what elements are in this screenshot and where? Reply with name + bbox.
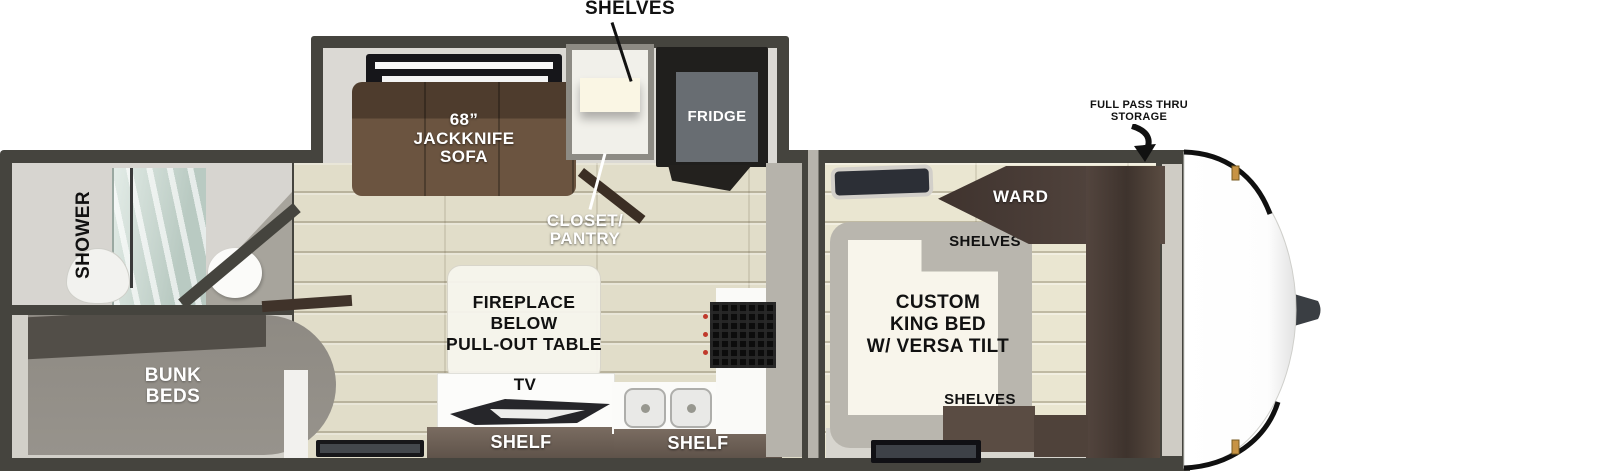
bedroom-corner-cabinet [1034, 415, 1088, 457]
corridor-wall [284, 370, 308, 458]
kitchen-bedroom-divider-wall [801, 150, 825, 458]
fireplace-table-label: FIREPLACE BELOW PULL-OUT TABLE [446, 292, 602, 355]
bed-label-line1: CUSTOM [867, 292, 1009, 314]
closet-shelf [580, 78, 640, 112]
storage-arrow-head [1134, 144, 1156, 162]
tv-shelf-label: SHELF [490, 433, 551, 452]
front-cap-body [1184, 152, 1296, 468]
bunk-beds-label: BUNK BEDS [145, 366, 202, 407]
table-label-line2: BELOW [446, 313, 602, 334]
fridge: FRIDGE [656, 47, 768, 167]
shower-label-box: SHOWER [64, 172, 104, 298]
storage-label-line1: FULL PASS THRU [1075, 99, 1203, 111]
sink-right [670, 388, 712, 428]
stove-knobs [703, 314, 708, 319]
tv-label-box: TV [500, 375, 550, 395]
storage-callout-box: FULL PASS THRU STORAGE [1075, 99, 1203, 123]
wardrobe-side [1086, 166, 1160, 458]
full-pass-thru-storage-label: FULL PASS THRU STORAGE [1075, 99, 1203, 123]
bunk-label-box: BUNK BEDS [113, 361, 233, 413]
front-cap [1170, 140, 1340, 476]
sofa-label-line3: SOFA [414, 148, 515, 166]
storage-arrow [1118, 124, 1168, 164]
table-label-line1: FIREPLACE [446, 292, 602, 313]
marker-light-top [1232, 166, 1239, 180]
bed-label-line2: KING BED [867, 314, 1009, 336]
table-label-line3: PULL-OUT TABLE [446, 334, 602, 355]
closet-label-line2: PANTRY [510, 230, 660, 248]
bedroom-window [830, 164, 933, 200]
fridge-front: FRIDGE [676, 72, 758, 162]
bed-label-line3: W/ VERSA TILT [867, 336, 1009, 358]
bedroom-shelves-top-label: SHELVES [949, 234, 1021, 250]
wardrobe-label: WARD [993, 188, 1049, 206]
bunk-label-line2: BEDS [145, 387, 202, 408]
bunk-label-line1: BUNK [145, 366, 202, 387]
stove [710, 302, 776, 368]
fridge-label: FRIDGE [687, 109, 746, 125]
storage-label-line2: STORAGE [1075, 111, 1203, 123]
tv [445, 396, 615, 430]
bed-label-box: CUSTOM KING BED W/ VERSA TILT [845, 290, 1031, 360]
shelves-closet [566, 44, 654, 160]
shelves-callout-label: SHELVES [585, 0, 675, 19]
pull-out-table: FIREPLACE BELOW PULL-OUT TABLE [447, 265, 601, 381]
jackknife-sofa: 68” JACKKNIFE SOFA [352, 82, 576, 196]
kitchen-shelf-label: SHELF [667, 434, 728, 453]
sink-left [624, 388, 666, 428]
bottom-wall [0, 457, 1190, 471]
shower-label: SHOWER [74, 191, 95, 279]
bunk-beds-headboard [28, 315, 266, 359]
rear-entry-door [316, 440, 424, 457]
tv-shelf: SHELF [427, 427, 615, 458]
tv-label: TV [514, 376, 537, 394]
closet-pantry-label: CLOSET/ PANTRY [510, 212, 660, 249]
shelves-callout-box: SHELVES [555, 0, 705, 18]
sofa-label-line2: JACKKNIFE [414, 130, 515, 148]
sofa-label: 68” JACKKNIFE SOFA [414, 111, 515, 166]
entry-step [871, 440, 981, 463]
shower-door-hinge [130, 168, 133, 288]
king-bed-label: CUSTOM KING BED W/ VERSA TILT [867, 292, 1009, 358]
marker-light-bottom [1232, 440, 1239, 454]
closet-label-line1: CLOSET/ [510, 212, 660, 230]
closet-pantry-label-box: CLOSET/ PANTRY [510, 212, 660, 249]
sofa-label-line1: 68” [414, 111, 515, 129]
rv-floorplan: 68” JACKKNIFE SOFA FRIDGE SHOWER BUNK BE… [0, 0, 1600, 476]
